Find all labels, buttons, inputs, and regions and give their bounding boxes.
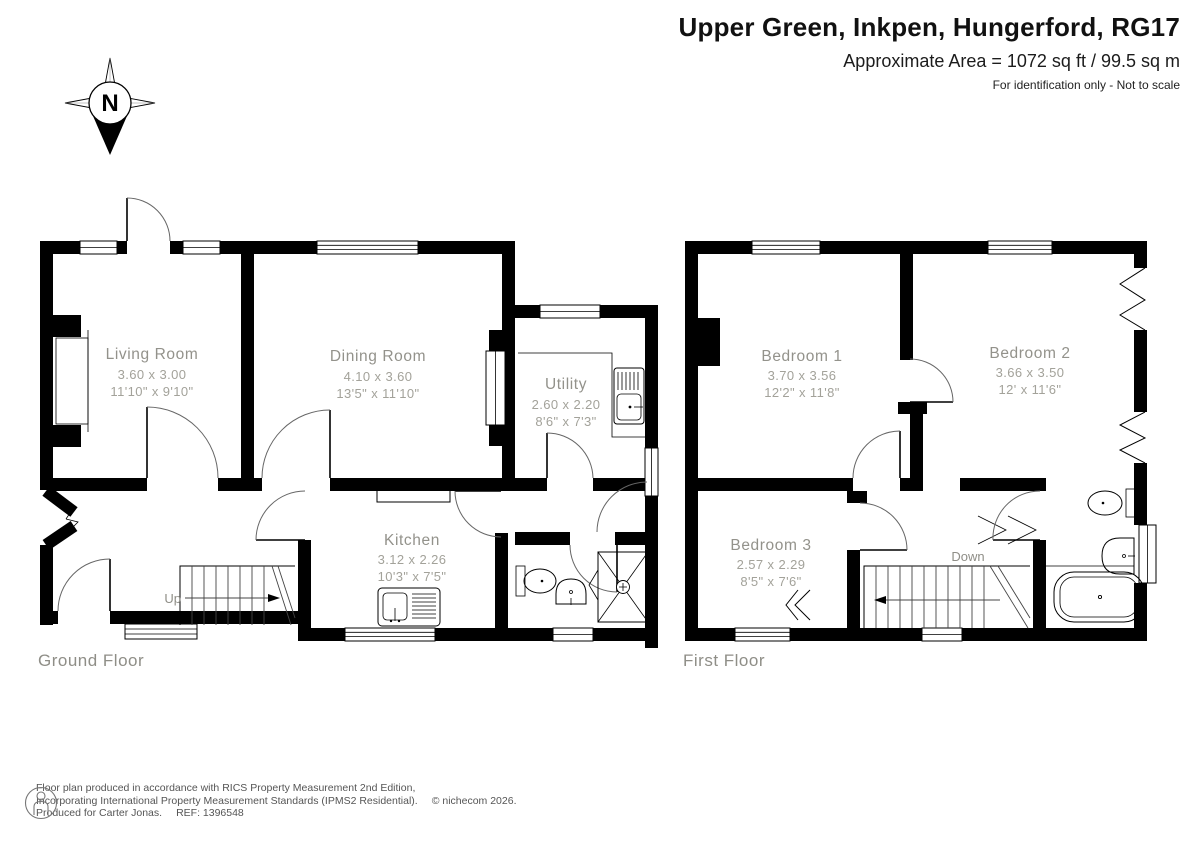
room-label-utility: Utility 2.60 x 2.20 8'6" x 7'3": [532, 376, 601, 429]
ground-floor-windows: [66, 241, 658, 641]
window: [553, 628, 593, 641]
fireplace: [56, 330, 88, 432]
window: [1139, 525, 1156, 583]
window: [988, 241, 1052, 254]
door: [910, 359, 953, 402]
window: [80, 241, 117, 254]
casement-window: [1120, 268, 1145, 330]
first-floor-plan: Down Bedroom: [683, 241, 1156, 670]
svg-text:3.70 x 3.56: 3.70 x 3.56: [768, 368, 837, 383]
svg-text:11'10" x 9'10": 11'10" x 9'10": [110, 384, 193, 399]
room-label-kitchen: Kitchen 3.12 x 2.26 10'3" x 7'5": [378, 532, 447, 584]
door: [127, 198, 170, 241]
svg-text:Dining Room: Dining Room: [330, 348, 426, 365]
room-label-living: Living Room 3.60 x 3.00 11'10" x 9'10": [106, 346, 199, 399]
room-label-dining: Dining Room 4.10 x 3.60 13'5" x 11'10": [330, 348, 426, 401]
svg-text:3.12 x 2.26: 3.12 x 2.26: [378, 552, 447, 567]
compass-north-label: N: [101, 90, 118, 117]
stairs-up-label: Up: [164, 591, 181, 606]
stairs-down-label: Down: [951, 549, 984, 564]
svg-text:Living Room: Living Room: [106, 346, 199, 363]
person-icon: [22, 782, 60, 822]
svg-text:Kitchen: Kitchen: [384, 532, 440, 549]
svg-text:Utility: Utility: [545, 376, 587, 393]
window: [486, 351, 505, 425]
footer-line2: Incorporating International Property Mea…: [36, 795, 418, 807]
window: [345, 628, 435, 641]
basin: [556, 579, 586, 605]
svg-text:Bedroom 3: Bedroom 3: [730, 537, 811, 554]
window: [183, 241, 220, 254]
ground-floor-walls: [40, 241, 658, 648]
svg-text:3.60 x 3.00: 3.60 x 3.00: [118, 367, 187, 382]
svg-text:2.60 x 2.20: 2.60 x 2.20: [532, 397, 601, 412]
toilet: [1088, 489, 1135, 517]
first-floor-stairs: Down: [864, 549, 1030, 628]
svg-text:13'5" x 11'10": 13'5" x 11'10": [336, 386, 419, 401]
door: [853, 431, 900, 478]
toilet: [516, 566, 556, 596]
door: [256, 491, 305, 540]
first-floor-label: First Floor: [683, 651, 765, 670]
svg-text:8'6" x 7'3": 8'6" x 7'3": [535, 414, 596, 429]
footer-copyright: © nichecom 2026.: [432, 795, 517, 807]
svg-text:Bedroom 2: Bedroom 2: [989, 345, 1070, 362]
floorplan-canvas: N: [0, 0, 1200, 848]
window: [125, 624, 197, 639]
svg-text:12' x 11'6": 12' x 11'6": [999, 382, 1062, 397]
door: [547, 433, 593, 478]
ground-floor-room-labels: Living Room 3.60 x 3.00 11'10" x 9'10" D…: [106, 346, 601, 584]
ground-floor-label: Ground Floor: [38, 651, 144, 670]
svg-text:12'2" x 11'8": 12'2" x 11'8": [764, 385, 840, 400]
door: [262, 410, 330, 478]
basin: [1102, 538, 1135, 574]
footer-line1: Floor plan produced in accordance with R…: [36, 782, 517, 795]
compass-icon: N: [65, 58, 155, 155]
svg-text:2.57 x 2.29: 2.57 x 2.29: [737, 557, 806, 572]
door: [58, 559, 110, 611]
shower: [589, 552, 648, 622]
room-label-bedroom2: Bedroom 2 3.66 x 3.50 12' x 11'6": [989, 345, 1070, 397]
door: [455, 491, 501, 537]
window: [752, 241, 820, 254]
window: [922, 628, 962, 641]
door: [860, 503, 907, 550]
window: [735, 628, 790, 641]
window: [645, 448, 658, 496]
room-label-bedroom1: Bedroom 1 3.70 x 3.56 12'2" x 11'8": [761, 348, 842, 400]
window: [540, 305, 600, 318]
footer-line2-row: Incorporating International Property Mea…: [36, 795, 517, 808]
footer-line3-row: Produced for Carter Jonas.REF: 1396548: [36, 807, 517, 820]
casement-window: [1120, 412, 1145, 463]
footer: Floor plan produced in accordance with R…: [22, 782, 517, 820]
casement-window: [786, 590, 810, 620]
kitchen-sink: [378, 588, 440, 626]
svg-text:3.66 x 3.50: 3.66 x 3.50: [996, 365, 1065, 380]
window: [317, 241, 418, 254]
svg-text:10'3" x 7'5": 10'3" x 7'5": [378, 569, 447, 584]
room-label-bedroom3: Bedroom 3 2.57 x 2.29 8'5" x 7'6": [730, 537, 811, 589]
svg-text:8'5" x 7'6": 8'5" x 7'6": [740, 574, 801, 589]
ground-floor-plan: Up: [38, 198, 658, 670]
svg-text:Bedroom 1: Bedroom 1: [761, 348, 842, 365]
footer-ref: REF: 1396548: [176, 807, 244, 819]
door: [147, 407, 218, 478]
first-floor-fixtures: [1046, 489, 1144, 622]
svg-text:4.10 x 3.60: 4.10 x 3.60: [344, 369, 413, 384]
